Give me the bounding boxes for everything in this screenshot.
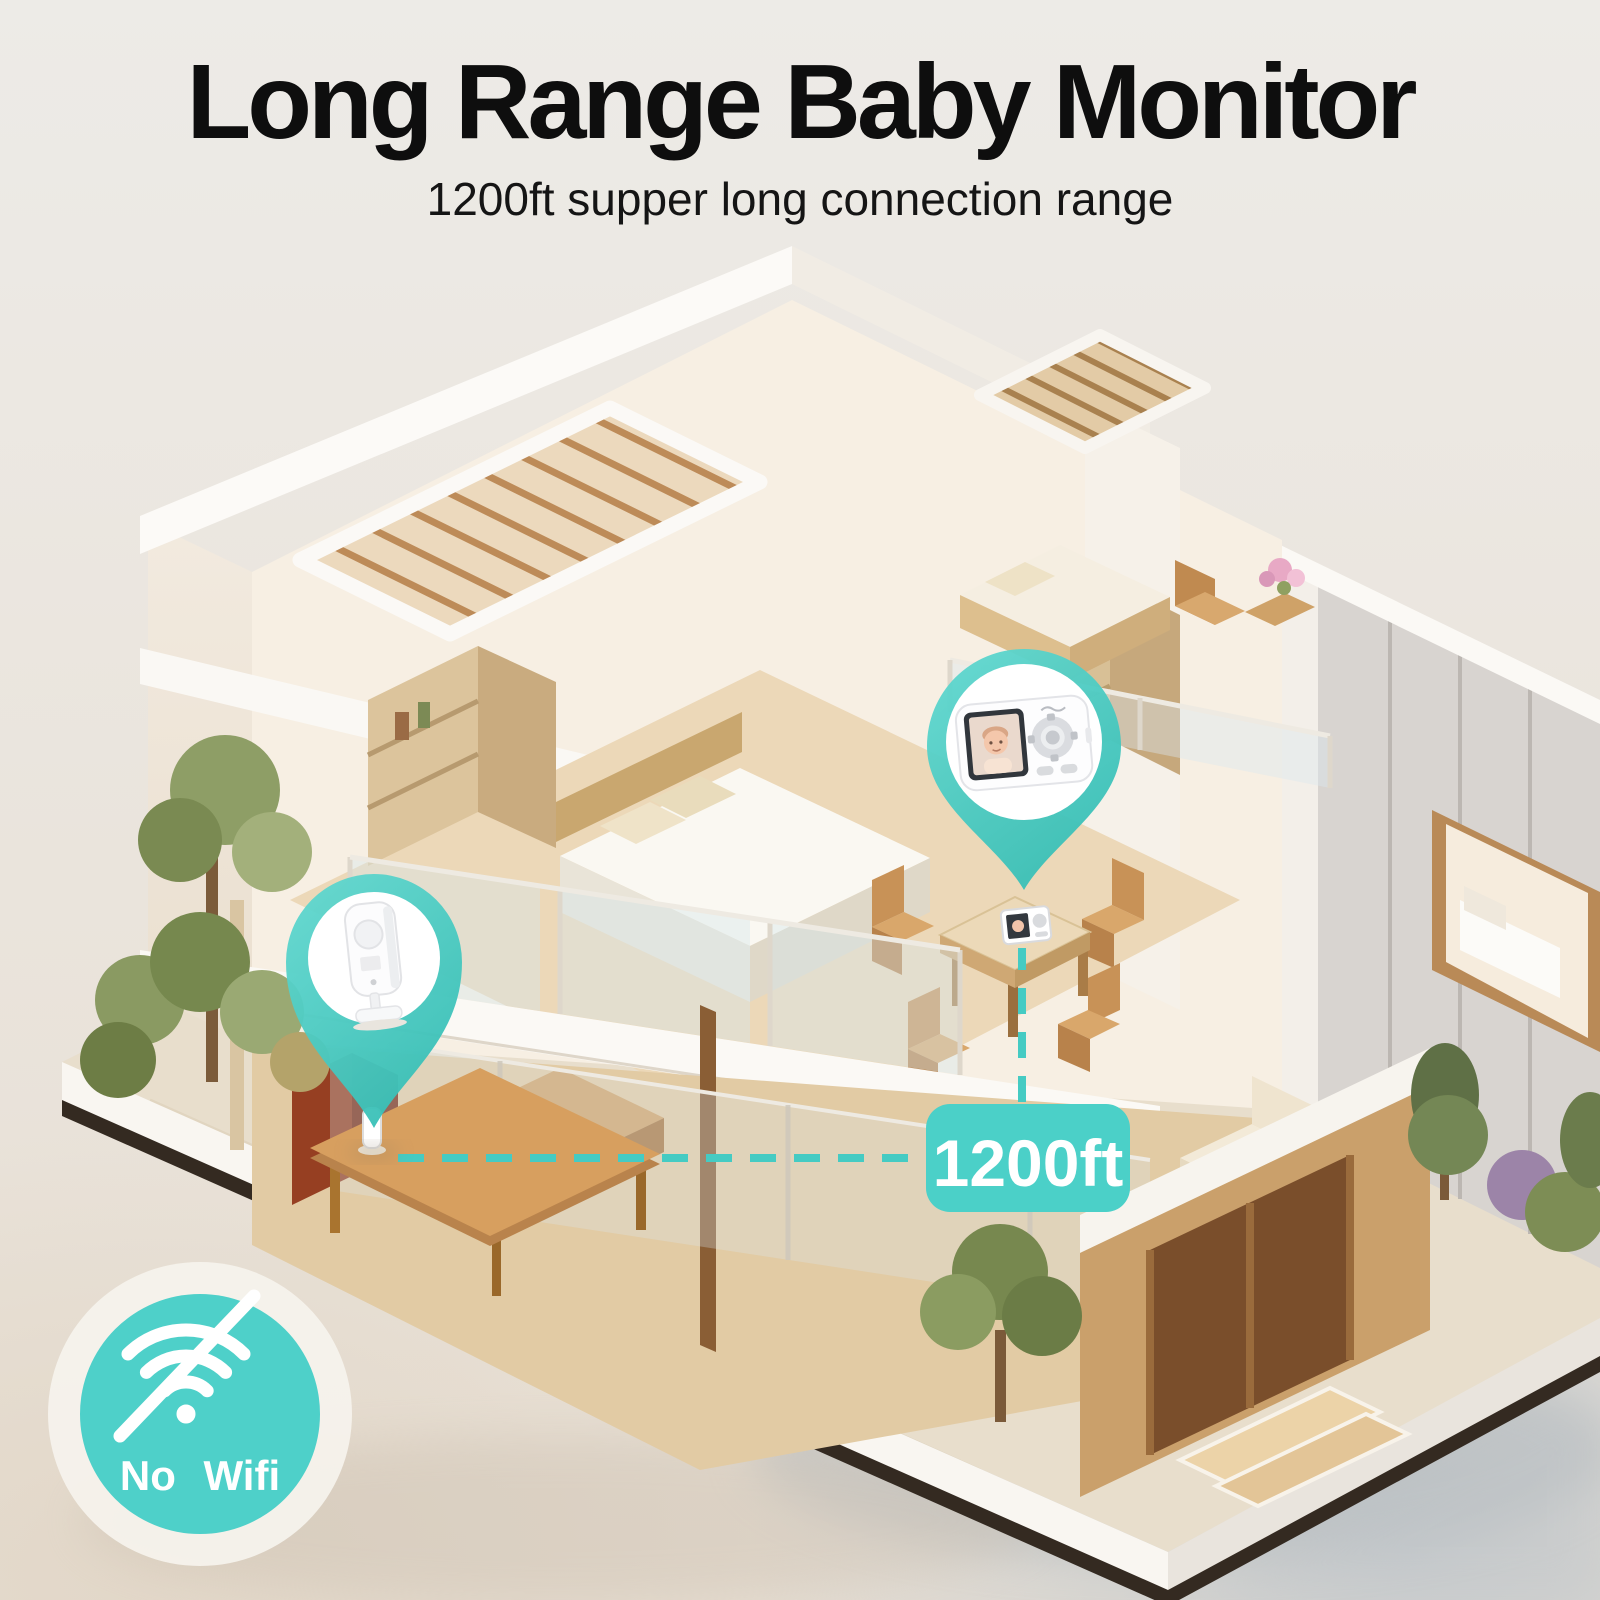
parent-monitor-device xyxy=(955,694,1096,791)
house-illustration: 1200ft xyxy=(0,0,1600,1600)
monitor-unit-small xyxy=(1000,906,1051,945)
no-wifi-label: No Wifi xyxy=(120,1452,280,1499)
no-wifi-badge: No Wifi xyxy=(48,1262,352,1566)
page-background: Long Range Baby Monitor 1200ft supper lo… xyxy=(0,0,1600,1600)
range-badge: 1200ft xyxy=(926,1104,1130,1212)
range-badge-label: 1200ft xyxy=(933,1126,1124,1200)
